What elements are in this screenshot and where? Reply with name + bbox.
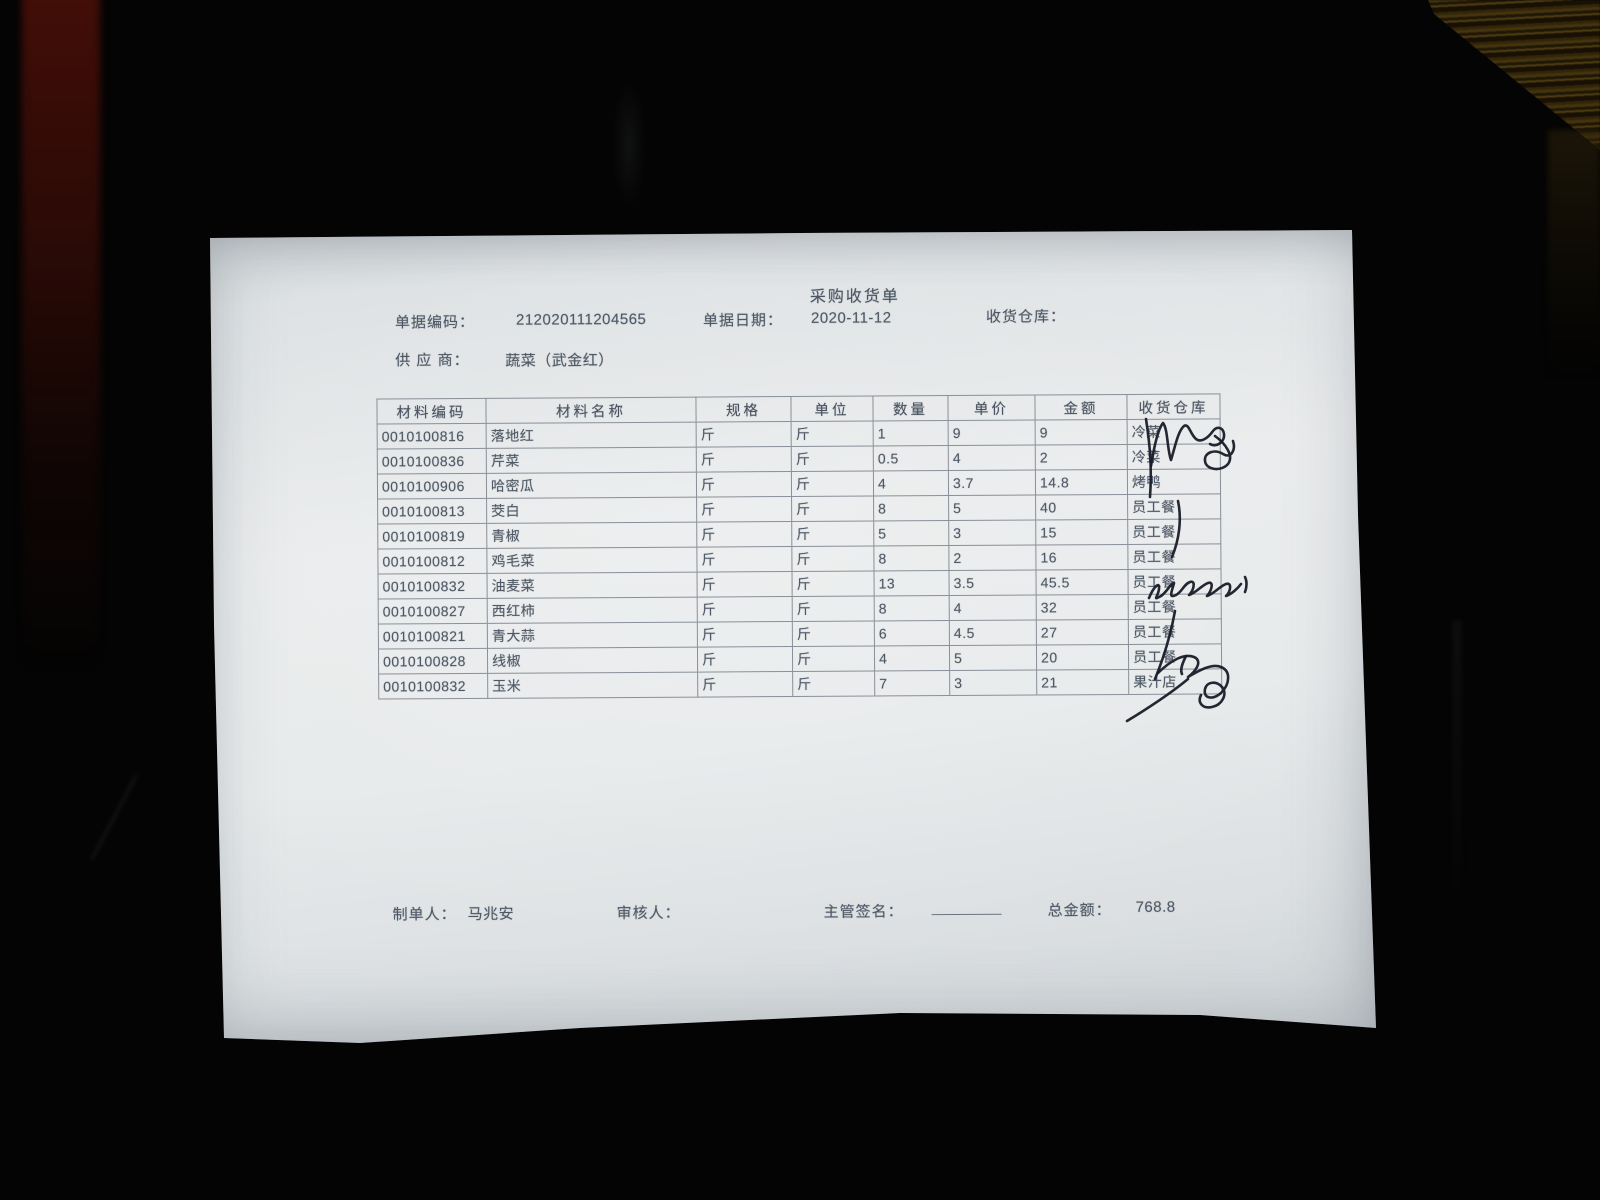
cell-price: 2 bbox=[949, 545, 1036, 571]
cell-price: 3 bbox=[949, 520, 1036, 546]
cell-code: 0010100832 bbox=[378, 573, 487, 599]
background-smudge bbox=[90, 775, 138, 861]
cell-name: 哈密瓜 bbox=[486, 472, 696, 498]
col-header-amount: 金额 bbox=[1035, 394, 1127, 420]
col-header-qty: 数量 bbox=[873, 396, 948, 421]
preparer-label: 制单人： bbox=[393, 903, 457, 924]
cell-unit: 斤 bbox=[792, 646, 874, 672]
cell-qty: 1 bbox=[873, 421, 948, 446]
cell-qty: 8 bbox=[874, 496, 949, 521]
col-header-warehouse: 收货仓库 bbox=[1127, 394, 1220, 420]
cell-amount: 32 bbox=[1036, 594, 1128, 620]
cell-code: 0010100827 bbox=[378, 598, 487, 624]
cell-qty: 0.5 bbox=[873, 446, 948, 471]
cell-unit: 斤 bbox=[792, 596, 874, 622]
cell-name: 鸡毛菜 bbox=[487, 547, 697, 573]
cell-qty: 8 bbox=[874, 546, 949, 571]
cell-code: 0010100906 bbox=[377, 473, 486, 499]
cell-spec: 斤 bbox=[697, 597, 792, 623]
cell-price: 4.5 bbox=[949, 620, 1036, 646]
cell-price: 3.5 bbox=[949, 570, 1036, 596]
receipt-title: 采购收货单 bbox=[755, 282, 955, 307]
doc-code-value: 212020111204565 bbox=[516, 311, 647, 329]
cell-spec: 斤 bbox=[697, 647, 792, 673]
cell-spec: 斤 bbox=[696, 422, 791, 448]
cell-amount: 2 bbox=[1035, 444, 1127, 470]
cell-amount: 40 bbox=[1036, 494, 1128, 520]
cell-price: 5 bbox=[949, 495, 1036, 521]
cell-warehouse: 烤鸭 bbox=[1127, 469, 1220, 495]
doc-date-value: 2020-11-12 bbox=[811, 309, 892, 326]
reviewer-label: 审核人： bbox=[617, 902, 681, 923]
cell-warehouse: 员工餐 bbox=[1128, 569, 1221, 595]
cell-code: 0010100816 bbox=[377, 423, 486, 449]
cell-price: 4 bbox=[948, 445, 1035, 471]
cell-spec: 斤 bbox=[697, 497, 792, 523]
cell-code: 0010100812 bbox=[378, 548, 487, 574]
supplier-label: 供 应 商： bbox=[395, 349, 469, 370]
cell-warehouse: 员工餐 bbox=[1128, 594, 1221, 620]
cell-code: 0010100828 bbox=[378, 648, 487, 674]
cell-warehouse: 员工餐 bbox=[1128, 519, 1221, 545]
cell-unit: 斤 bbox=[791, 471, 873, 497]
cell-qty: 13 bbox=[874, 571, 949, 596]
paper-sheet: 采购收货单 单据编码： 212020111204565 单据日期： 2020-1… bbox=[200, 225, 1385, 1047]
cell-code: 0010100832 bbox=[379, 673, 488, 699]
preparer-value: 马兆安 bbox=[468, 903, 515, 924]
cell-name: 玉米 bbox=[488, 672, 698, 698]
col-header-code: 材料编码 bbox=[377, 398, 486, 424]
cell-qty: 4 bbox=[873, 471, 948, 496]
cell-amount: 20 bbox=[1036, 644, 1128, 670]
cell-qty: 5 bbox=[874, 521, 949, 546]
wood-texture bbox=[1424, 0, 1600, 150]
cell-spec: 斤 bbox=[696, 472, 791, 498]
cell-amount: 14.8 bbox=[1035, 469, 1127, 495]
cell-spec: 斤 bbox=[698, 671, 793, 697]
cell-unit: 斤 bbox=[791, 421, 873, 447]
cell-spec: 斤 bbox=[697, 547, 792, 573]
cell-name: 青大蒜 bbox=[487, 622, 697, 648]
cell-warehouse: 冷菜 bbox=[1127, 419, 1220, 445]
cell-unit: 斤 bbox=[792, 571, 874, 597]
photo-background: 采购收货单 单据编码： 212020111204565 单据日期： 2020-1… bbox=[0, 0, 1600, 1200]
cell-price: 4 bbox=[949, 595, 1036, 621]
cell-amount: 45.5 bbox=[1036, 569, 1128, 595]
cell-warehouse: 员工餐 bbox=[1128, 544, 1221, 570]
cell-unit: 斤 bbox=[792, 546, 874, 572]
cell-spec: 斤 bbox=[697, 622, 792, 648]
supplier-value: 蔬菜（武金红） bbox=[505, 349, 614, 371]
cell-unit: 斤 bbox=[791, 446, 873, 472]
items-table: 材料编码 材料名称 规格 单位 数量 单价 金额 收货仓库 0010100816… bbox=[376, 393, 1222, 699]
cell-unit: 斤 bbox=[792, 521, 874, 547]
cell-qty: 7 bbox=[875, 671, 950, 696]
cell-name: 油麦菜 bbox=[487, 572, 697, 598]
cell-spec: 斤 bbox=[696, 447, 791, 473]
total-label: 总金额： bbox=[1048, 899, 1112, 920]
receipt-content: 采购收货单 单据编码： 212020111204565 单据日期： 2020-1… bbox=[197, 221, 1387, 1050]
cell-spec: 斤 bbox=[697, 572, 792, 598]
col-header-price: 单价 bbox=[948, 395, 1035, 421]
cell-amount: 16 bbox=[1036, 544, 1128, 570]
doc-code-label: 单据编码： bbox=[395, 311, 475, 332]
cell-code: 0010100813 bbox=[378, 498, 487, 524]
cell-warehouse: 果汁店 bbox=[1129, 669, 1222, 695]
cell-code: 0010100836 bbox=[377, 448, 486, 474]
cell-name: 线椒 bbox=[487, 647, 697, 673]
cell-amount: 21 bbox=[1037, 669, 1129, 695]
cell-price: 9 bbox=[948, 420, 1035, 446]
manager-sign-blank-line bbox=[932, 900, 1002, 915]
background-smudge bbox=[1452, 620, 1462, 890]
cell-amount: 27 bbox=[1036, 619, 1128, 645]
cell-code: 0010100821 bbox=[378, 623, 487, 649]
col-header-name: 材料名称 bbox=[486, 397, 696, 423]
cell-name: 落地红 bbox=[486, 422, 696, 448]
cell-warehouse: 员工餐 bbox=[1128, 494, 1221, 520]
cell-price: 3 bbox=[950, 670, 1037, 696]
cell-unit: 斤 bbox=[792, 621, 874, 647]
doc-date-label: 单据日期： bbox=[703, 309, 783, 330]
cell-qty: 8 bbox=[874, 596, 949, 621]
wood-shadow bbox=[1548, 130, 1600, 380]
cell-warehouse: 员工餐 bbox=[1128, 644, 1221, 670]
cell-qty: 6 bbox=[874, 621, 949, 646]
cell-unit: 斤 bbox=[792, 496, 874, 522]
cell-name: 芹菜 bbox=[486, 447, 696, 473]
cell-warehouse: 冷菜 bbox=[1127, 444, 1220, 470]
cell-unit: 斤 bbox=[793, 671, 875, 697]
cell-amount: 9 bbox=[1035, 419, 1127, 445]
cell-price: 5 bbox=[949, 645, 1036, 671]
col-header-unit: 单位 bbox=[791, 396, 873, 422]
manager-sign-label: 主管签名： bbox=[824, 900, 904, 921]
cell-name: 西红柿 bbox=[487, 597, 697, 623]
table-row: 0010100832 玉米 斤 斤 7 3 21 果汁店 bbox=[379, 669, 1222, 699]
total-value: 768.8 bbox=[1136, 899, 1176, 916]
cell-price: 3.7 bbox=[948, 470, 1035, 496]
col-header-spec: 规格 bbox=[696, 397, 791, 423]
cell-spec: 斤 bbox=[697, 522, 792, 548]
cell-amount: 15 bbox=[1036, 519, 1128, 545]
background-smudge bbox=[612, 80, 646, 210]
cell-code: 0010100819 bbox=[378, 523, 487, 549]
cell-name: 茭白 bbox=[487, 497, 697, 523]
cell-qty: 4 bbox=[874, 646, 949, 671]
red-object bbox=[22, 0, 100, 670]
warehouse-field-label: 收货仓库： bbox=[986, 305, 1066, 326]
cell-name: 青椒 bbox=[487, 522, 697, 548]
cell-warehouse: 员工餐 bbox=[1128, 619, 1221, 645]
